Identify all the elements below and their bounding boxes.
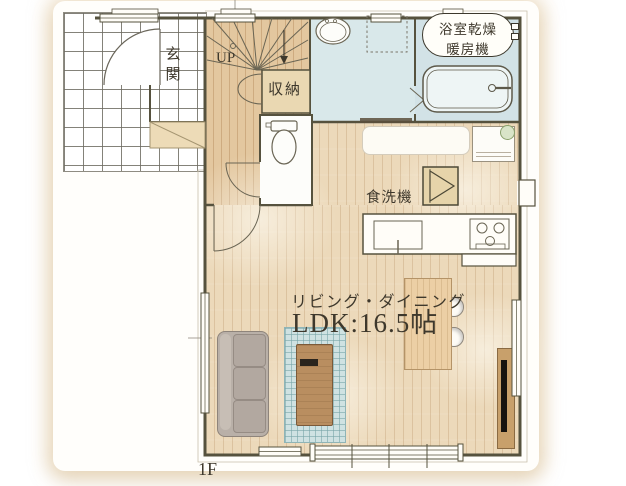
- bath-heater-line1: 浴室乾燥: [423, 18, 513, 38]
- bathtub-icon: [423, 66, 512, 112]
- kitchen-island: [363, 214, 516, 266]
- plan-linework: [0, 0, 626, 486]
- genkan-step: [150, 122, 205, 148]
- washbasin-icon: [316, 18, 350, 44]
- floorplan-page: 玄関 UP 収納 浴室乾燥 暖房機 食洗機 リビング・ダイニング LDK:16.…: [0, 0, 626, 486]
- storage-label: 収納: [268, 82, 302, 99]
- entrance-label: 玄関: [163, 46, 180, 86]
- bath-heater-label: 浴室乾燥 暖房機: [422, 13, 514, 57]
- bath-heater-line2: 暖房機: [423, 38, 513, 58]
- toilet-door-arc: [226, 163, 260, 197]
- front-door-arc: [104, 29, 160, 85]
- dishwasher-icon: [423, 167, 458, 205]
- stairs-up-label: UP: [216, 50, 235, 67]
- dishwasher-label: 食洗機: [366, 191, 413, 207]
- folding-door-icon: [410, 88, 424, 112]
- floor-label: 1F: [198, 460, 217, 480]
- ldk-door-arc: [214, 205, 260, 251]
- label-tab: [511, 23, 519, 30]
- ldk-size-label: LDK:16.5帖: [292, 309, 438, 339]
- label-tab: [511, 33, 519, 40]
- storage-double-doors: [238, 74, 262, 104]
- back-door: [517, 180, 535, 206]
